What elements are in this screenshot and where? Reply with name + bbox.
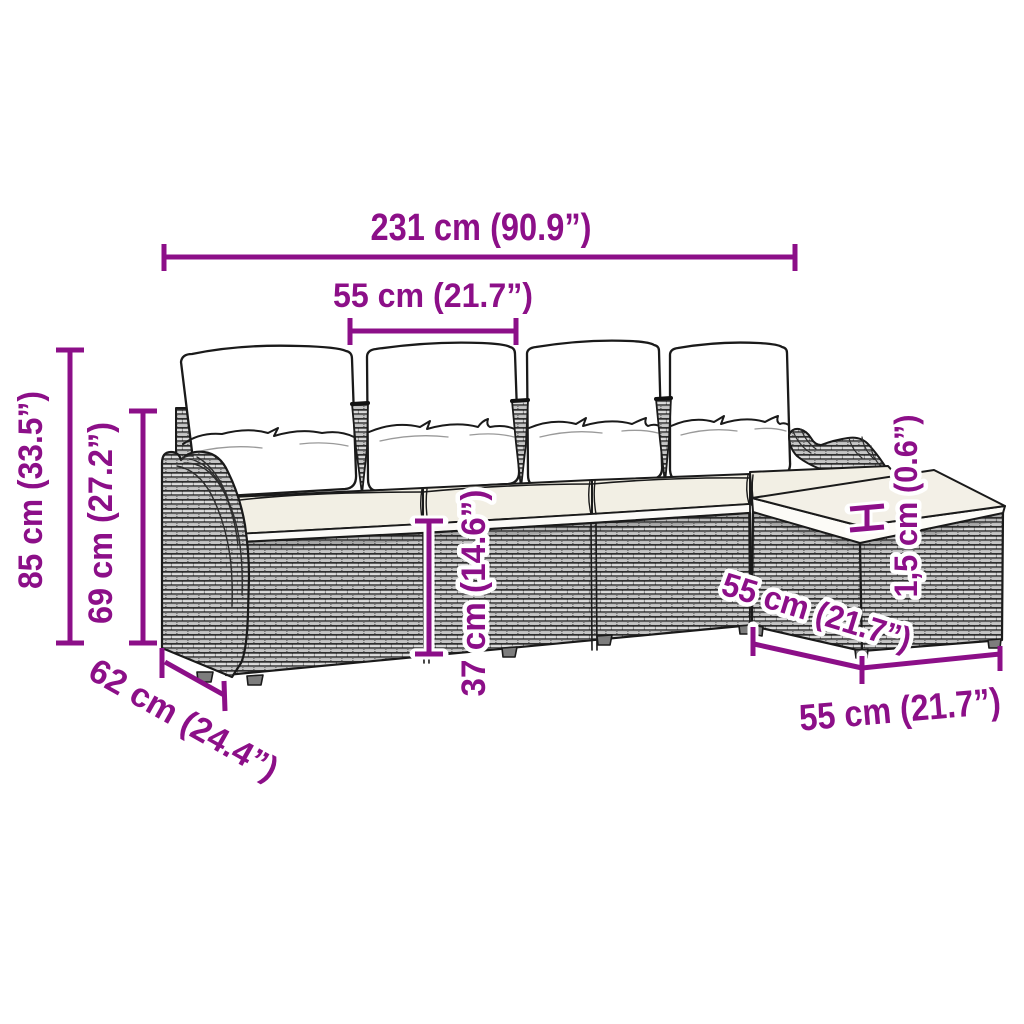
svg-text:231 cm (90.9”): 231 cm (90.9”) xyxy=(371,207,592,249)
svg-text:55 cm (21.7”): 55 cm (21.7”) xyxy=(333,277,533,315)
svg-text:37 cm (14.6”): 37 cm (14.6”) xyxy=(455,490,493,697)
svg-text:1,5 cm (0.6”): 1,5 cm (0.6”) xyxy=(888,415,924,598)
svg-text:85 cm (33.5”): 85 cm (33.5”) xyxy=(12,391,50,589)
svg-text:69 cm (27.2”): 69 cm (27.2”) xyxy=(82,422,120,624)
